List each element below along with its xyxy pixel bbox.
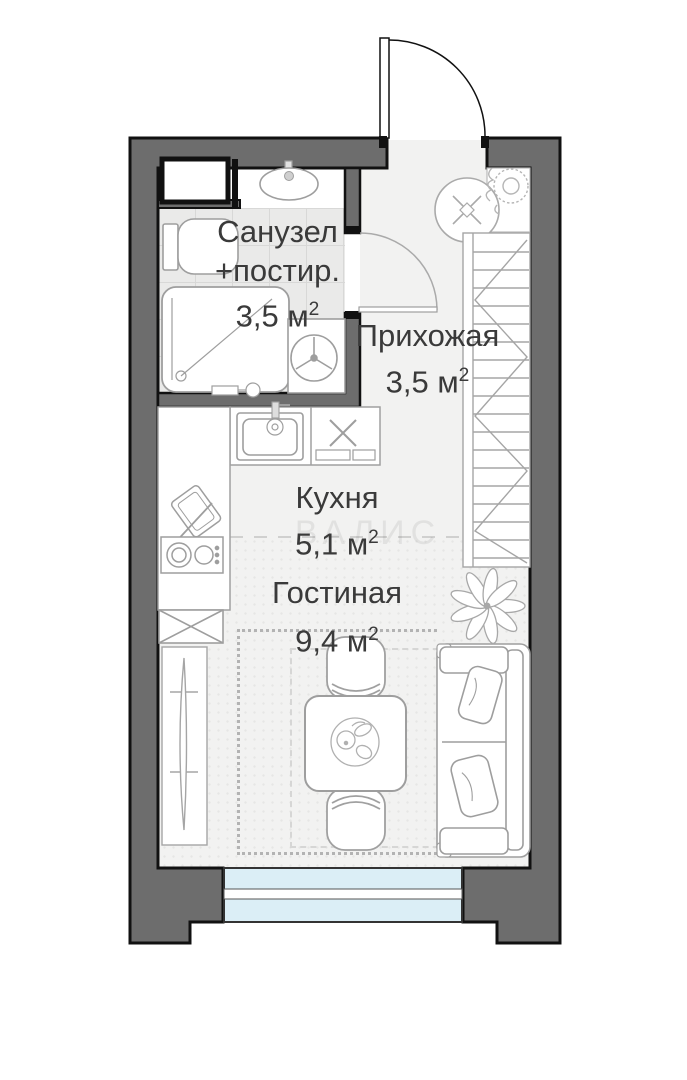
shaft-niche <box>162 159 238 208</box>
tv-cabinet-icon <box>162 647 207 845</box>
lotus-plant-icon <box>449 567 525 644</box>
appliance-x-cabinet-icon <box>159 610 223 643</box>
room-label-kitchen: Кухня 5,1 м2 <box>237 478 437 564</box>
kitchen-area: 5,1 м2 <box>237 518 437 564</box>
sofa-icon <box>437 644 530 857</box>
entrance-door-icon <box>379 38 489 148</box>
room-label-hallway: Прихожая 3,5 м2 <box>350 316 505 402</box>
hallway-name: Прихожая <box>350 316 505 356</box>
living-area: 9,4 м2 <box>237 614 437 662</box>
bathroom-name-line1: Санузел <box>170 212 385 251</box>
kitchen-name: Кухня <box>237 478 437 518</box>
floor-plan: Санузел +постир. 3,5 м2 Прихожая 3,5 м2 … <box>0 0 687 1080</box>
living-name: Гостиная <box>237 572 437 614</box>
dining-table-icon <box>305 696 406 791</box>
window-icon <box>224 868 462 922</box>
hallway-area: 3,5 м2 <box>350 356 505 402</box>
hob-icon <box>161 537 223 573</box>
chair-bottom-icon <box>327 788 385 850</box>
bathroom-name-line2: +постир. <box>170 251 385 290</box>
room-label-living: Гостиная 9,4 м2 <box>237 572 437 662</box>
